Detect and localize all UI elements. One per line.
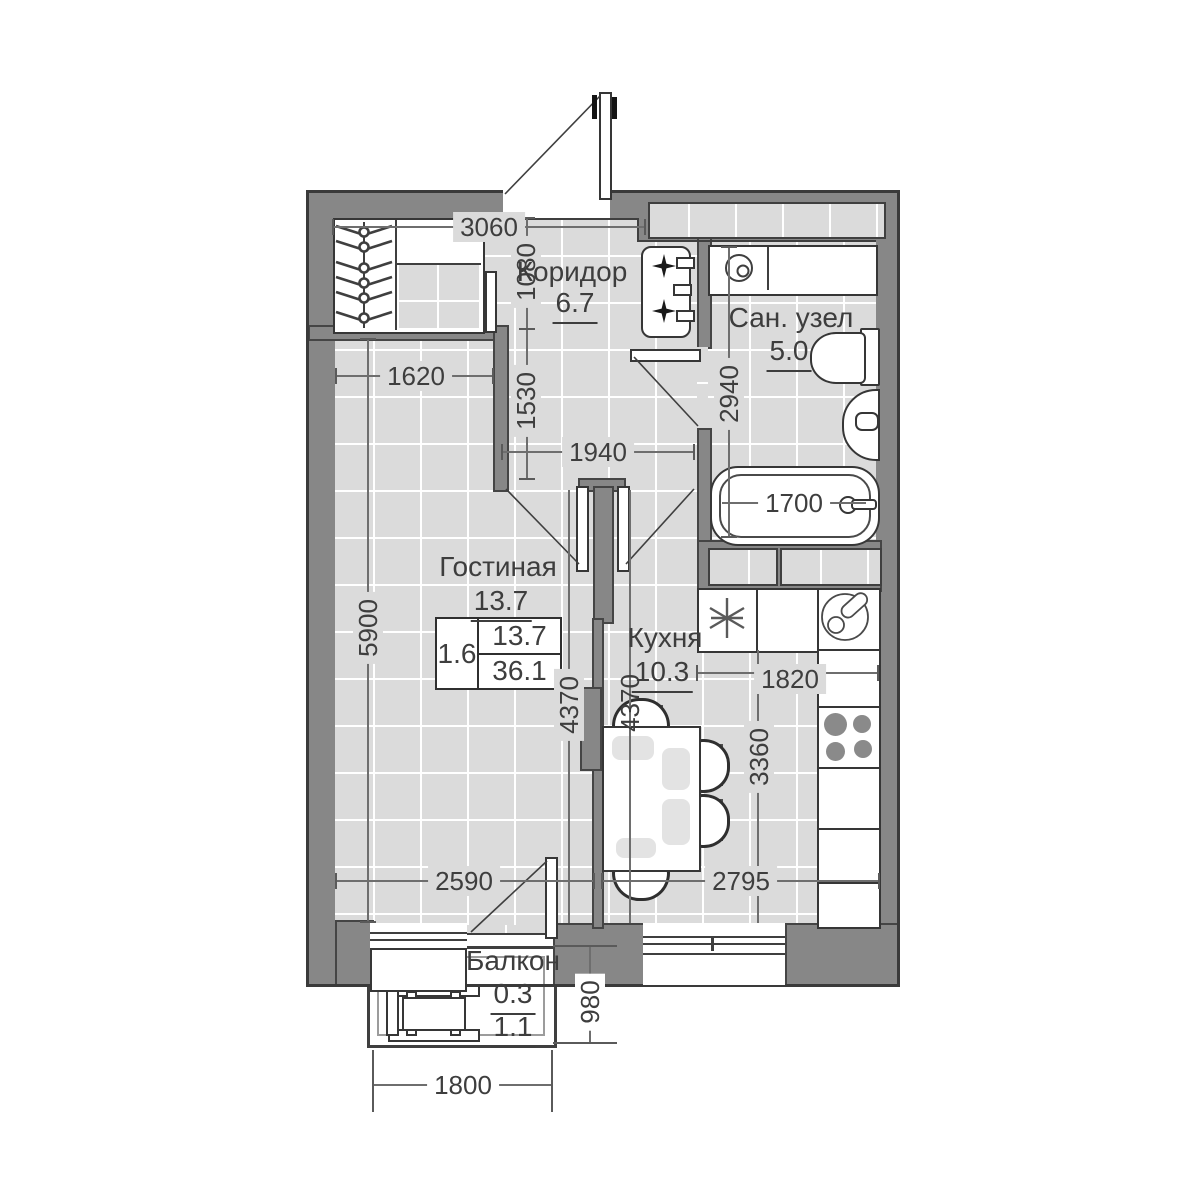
tick xyxy=(335,368,337,384)
dim-1800: 1800 xyxy=(427,1070,499,1100)
tick xyxy=(696,665,698,681)
tick xyxy=(335,873,337,889)
tick xyxy=(551,1050,553,1112)
tick xyxy=(519,478,535,480)
dim-1820: 1820 xyxy=(754,664,826,694)
tick xyxy=(878,873,880,889)
dim-2795: 2795 xyxy=(705,866,777,896)
tick xyxy=(601,873,603,889)
wardrobe-hangers xyxy=(336,222,392,328)
hall-cabinet-hook-3 xyxy=(676,310,695,322)
tick xyxy=(360,921,376,923)
dim-1940: 1940 xyxy=(562,437,634,467)
tick xyxy=(501,444,503,460)
tick xyxy=(519,328,535,330)
dim-4370-living: 4370 xyxy=(554,669,584,741)
tick xyxy=(721,246,737,248)
corridor-label: Коридор xyxy=(517,256,628,288)
dim-1530: 1530 xyxy=(511,365,541,437)
dim-1700: 1700 xyxy=(758,488,830,518)
dim-5900: 5900 xyxy=(353,592,383,664)
tick xyxy=(332,219,334,235)
bathroom-label: Сан. узел xyxy=(729,302,854,334)
entrance-door-stop-right xyxy=(612,97,617,119)
corridor-area: 6.7 xyxy=(553,287,598,319)
dim-3360: 3360 xyxy=(744,721,774,793)
kitchen-door-swing xyxy=(626,489,694,564)
floor-plan: 3060 1080 1620 1530 1940 2940 1700 5900 … xyxy=(0,0,1200,1200)
dim-2940: 2940 xyxy=(714,358,744,430)
hall-cabinet-hook-2 xyxy=(673,284,692,296)
living-label: Гостиная xyxy=(439,551,557,583)
dim-1620: 1620 xyxy=(380,361,452,391)
tick xyxy=(492,368,494,384)
kitchen-sink-icon xyxy=(710,598,744,638)
tick xyxy=(593,873,595,889)
dim-2590: 2590 xyxy=(428,866,500,896)
bathroom-door-swing xyxy=(634,357,698,426)
entrance-door-swing xyxy=(505,96,600,194)
living-area: 13.7 xyxy=(471,585,532,617)
kitchen-label: Кухня xyxy=(628,622,703,654)
balcony-label: Балкон xyxy=(466,945,560,977)
entrance-door-stop-left xyxy=(592,95,597,119)
tick xyxy=(372,1050,374,1112)
balcony-area-full: 1.1 xyxy=(491,1011,536,1043)
tick xyxy=(553,1042,617,1044)
tick xyxy=(693,444,695,460)
tick xyxy=(721,536,737,538)
bathroom-area: 5.0 xyxy=(767,335,812,367)
dim-980: 980 xyxy=(575,973,605,1030)
pan-appliance-icon xyxy=(822,591,870,640)
tick xyxy=(644,219,646,235)
tick xyxy=(553,945,617,947)
balcony-area-counted: 0.3 xyxy=(491,978,536,1010)
kitchen-area: 10.3 xyxy=(632,656,693,688)
hall-cabinet-hook-1 xyxy=(676,257,695,269)
tick xyxy=(877,665,879,681)
tick xyxy=(360,338,376,340)
